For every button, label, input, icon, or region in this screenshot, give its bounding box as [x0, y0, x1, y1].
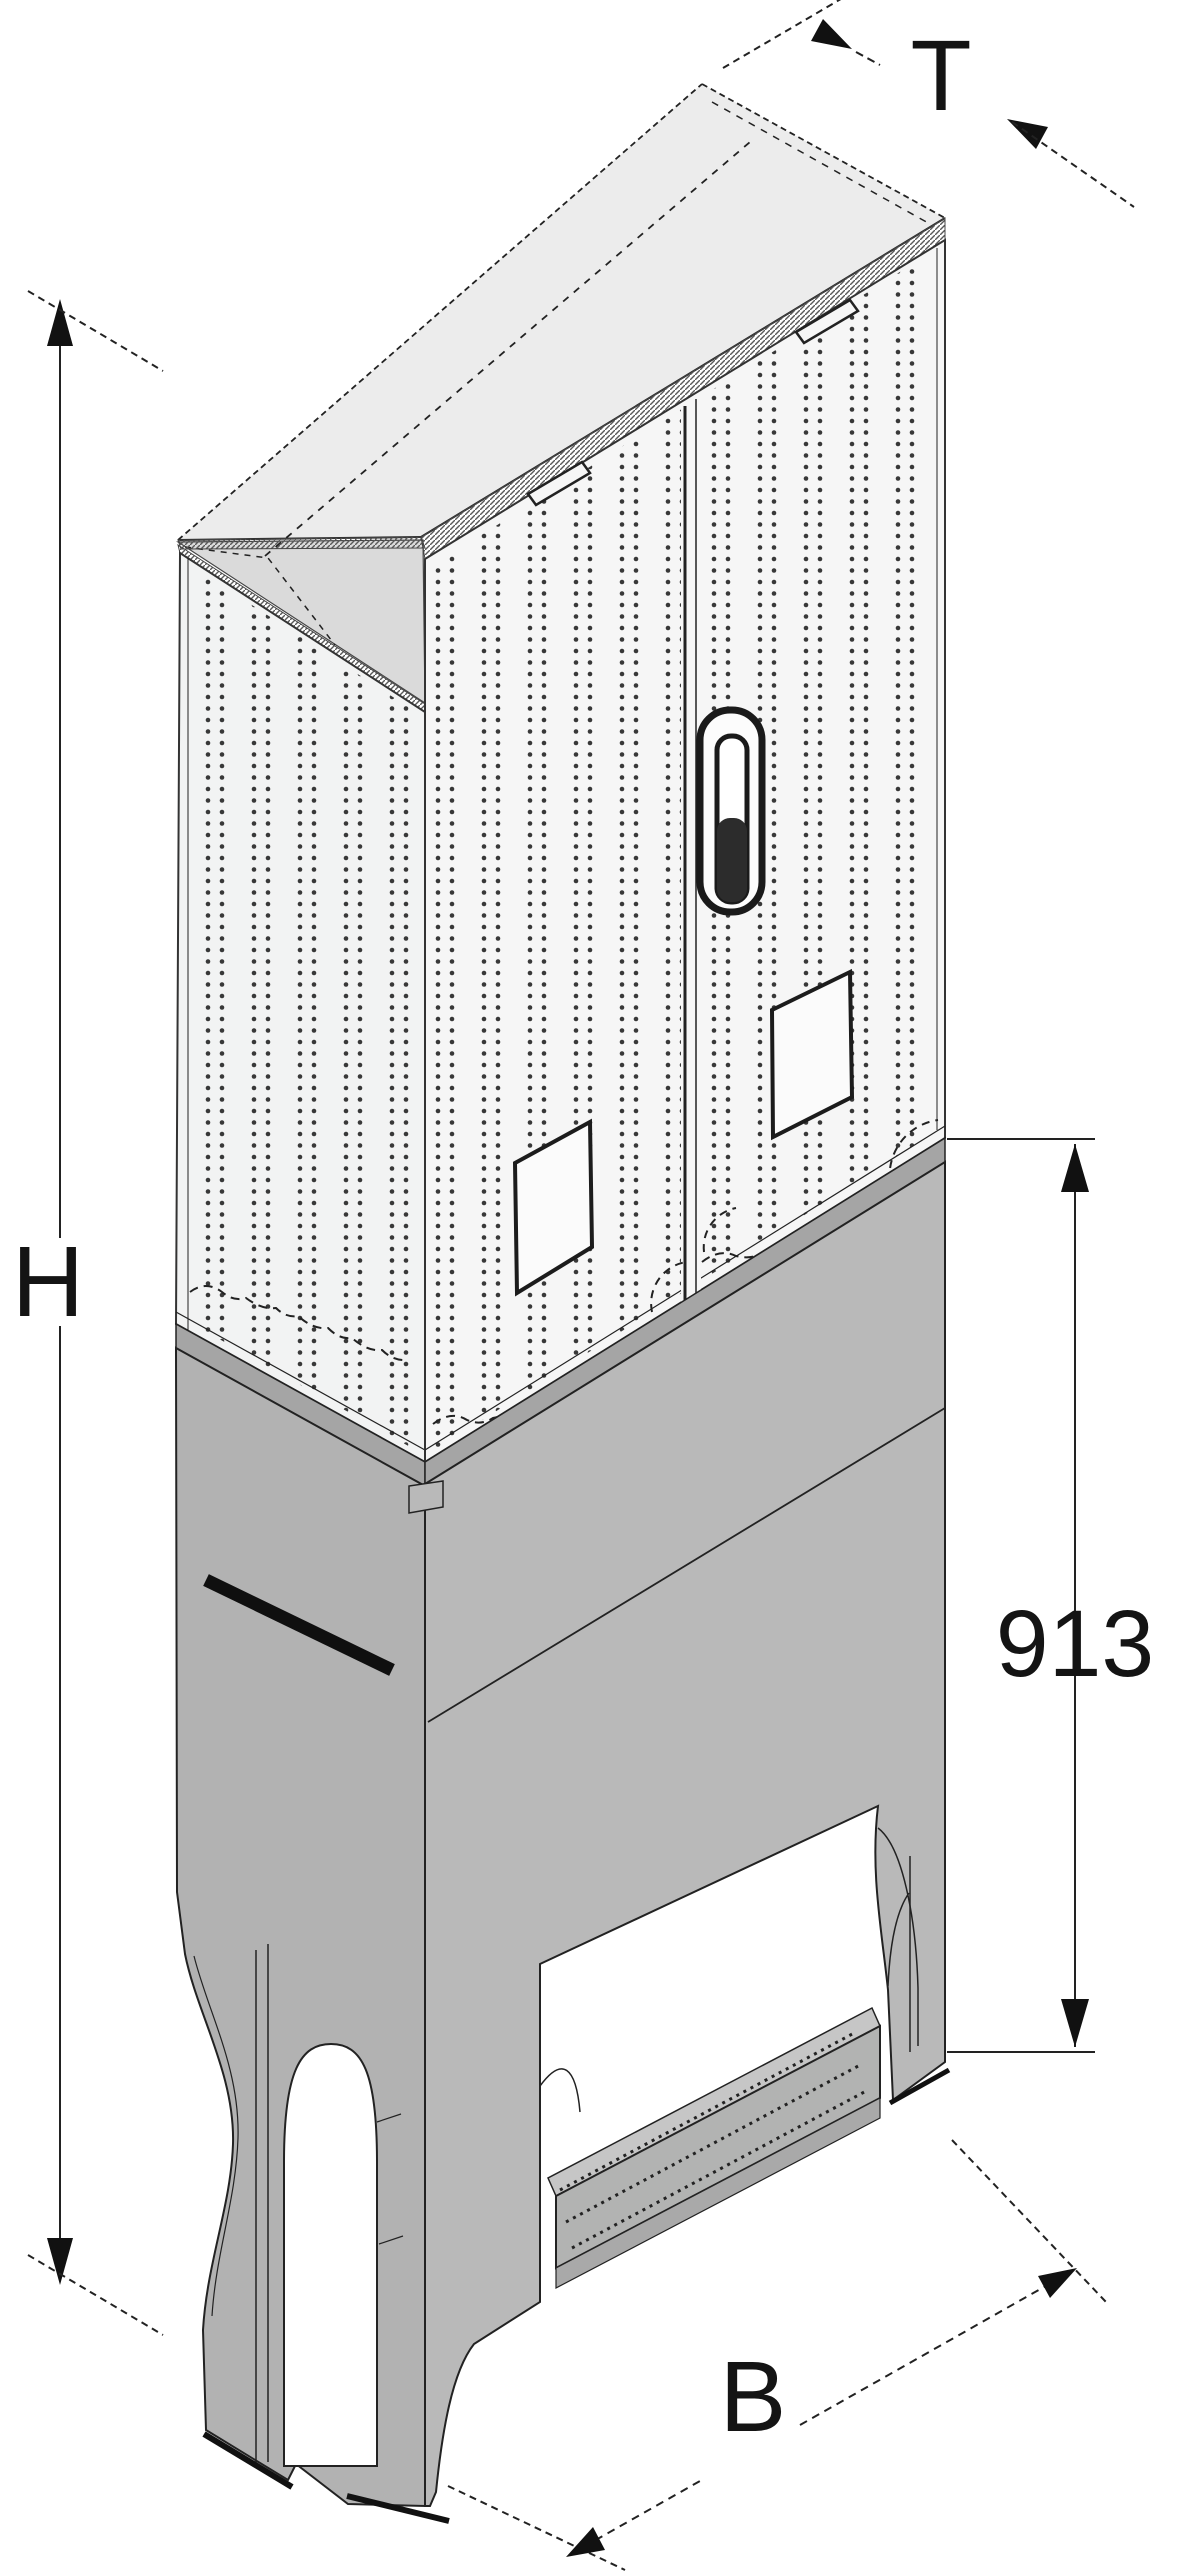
dim-b-arrow-right: [1038, 2268, 1077, 2298]
left-opening-arch-curve: [540, 2069, 580, 2112]
dim-h-arrow-bottom: [47, 2238, 73, 2285]
technical-drawing-cabinet: H T 913 B: [0, 0, 1200, 2571]
pedestal-notch: [409, 1481, 443, 1513]
dim-t-tail-left: [856, 52, 880, 65]
dim-b-line: [571, 2270, 1074, 2554]
dim-label-h: H: [12, 1226, 84, 1338]
dim-label-b: B: [720, 2341, 787, 2453]
cabinet-left-face: [176, 553, 425, 1462]
left-leg-arch-window: [284, 2044, 377, 2466]
dim-h: H: [12, 291, 163, 2335]
dim-h-ext-bottom: [28, 2255, 163, 2335]
dim-b: B: [448, 2140, 1106, 2570]
dim-h-arrow-top: [47, 299, 73, 346]
dim-h-ext-top: [28, 291, 163, 371]
pedestal-base-beam: [548, 2008, 880, 2288]
dim-b-arrow-left: [566, 2527, 605, 2557]
dim-913-arrow-top: [1061, 1144, 1089, 1192]
beam-front-face: [556, 2026, 880, 2268]
dim-913-arrow-bottom: [1061, 1999, 1089, 2047]
dim-label-t: T: [910, 20, 971, 132]
dim-b-ext-right: [952, 2140, 1106, 2302]
dim-913: 913: [947, 1139, 1154, 2052]
dim-label-913: 913: [996, 1591, 1155, 1697]
dim-t-arrow-left: [811, 19, 852, 49]
door-handle: [700, 710, 762, 912]
dim-b-ext-left: [448, 2486, 625, 2570]
